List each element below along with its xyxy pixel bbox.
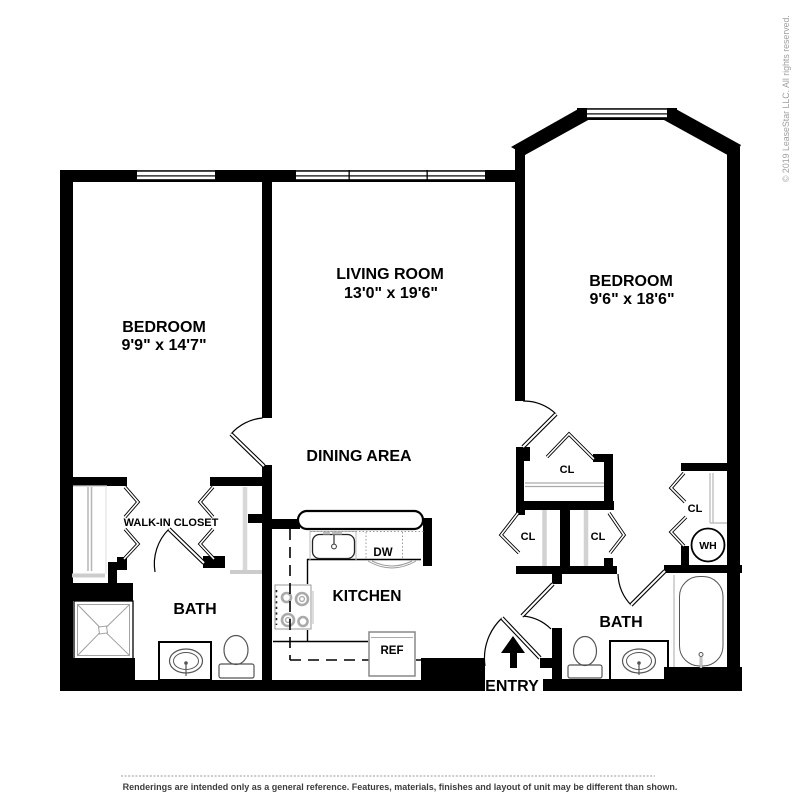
svg-text:13'0" x 19'6": 13'0" x 19'6" bbox=[344, 285, 438, 302]
svg-text:REF: REF bbox=[381, 645, 404, 657]
svg-text:WH: WH bbox=[699, 540, 717, 552]
svg-text:BATH: BATH bbox=[173, 601, 216, 618]
svg-text:WALK-IN CLOSET: WALK-IN CLOSET bbox=[124, 517, 219, 529]
svg-text:ENTRY: ENTRY bbox=[485, 678, 539, 695]
svg-text:KITCHEN: KITCHEN bbox=[333, 588, 402, 605]
svg-text:CL: CL bbox=[521, 531, 536, 543]
svg-text:CL: CL bbox=[688, 503, 703, 515]
svg-text:CL: CL bbox=[560, 464, 575, 476]
svg-text:LIVING ROOM: LIVING ROOM bbox=[336, 266, 444, 283]
svg-text:BATH: BATH bbox=[599, 614, 642, 631]
svg-text:BEDROOM: BEDROOM bbox=[122, 319, 206, 336]
svg-text:CL: CL bbox=[591, 531, 606, 543]
svg-text:9'9" x 14'7": 9'9" x 14'7" bbox=[121, 337, 206, 354]
svg-text:Renderings are intended only a: Renderings are intended only as a genera… bbox=[123, 782, 678, 792]
svg-text:© 2019 LeaseStar LLC. All righ: © 2019 LeaseStar LLC. All rights reserve… bbox=[781, 15, 791, 182]
svg-text:DW: DW bbox=[373, 547, 392, 559]
svg-text:DINING AREA: DINING AREA bbox=[306, 448, 412, 465]
svg-text:BEDROOM: BEDROOM bbox=[589, 273, 673, 290]
svg-text:9'6" x 18'6": 9'6" x 18'6" bbox=[589, 291, 674, 308]
